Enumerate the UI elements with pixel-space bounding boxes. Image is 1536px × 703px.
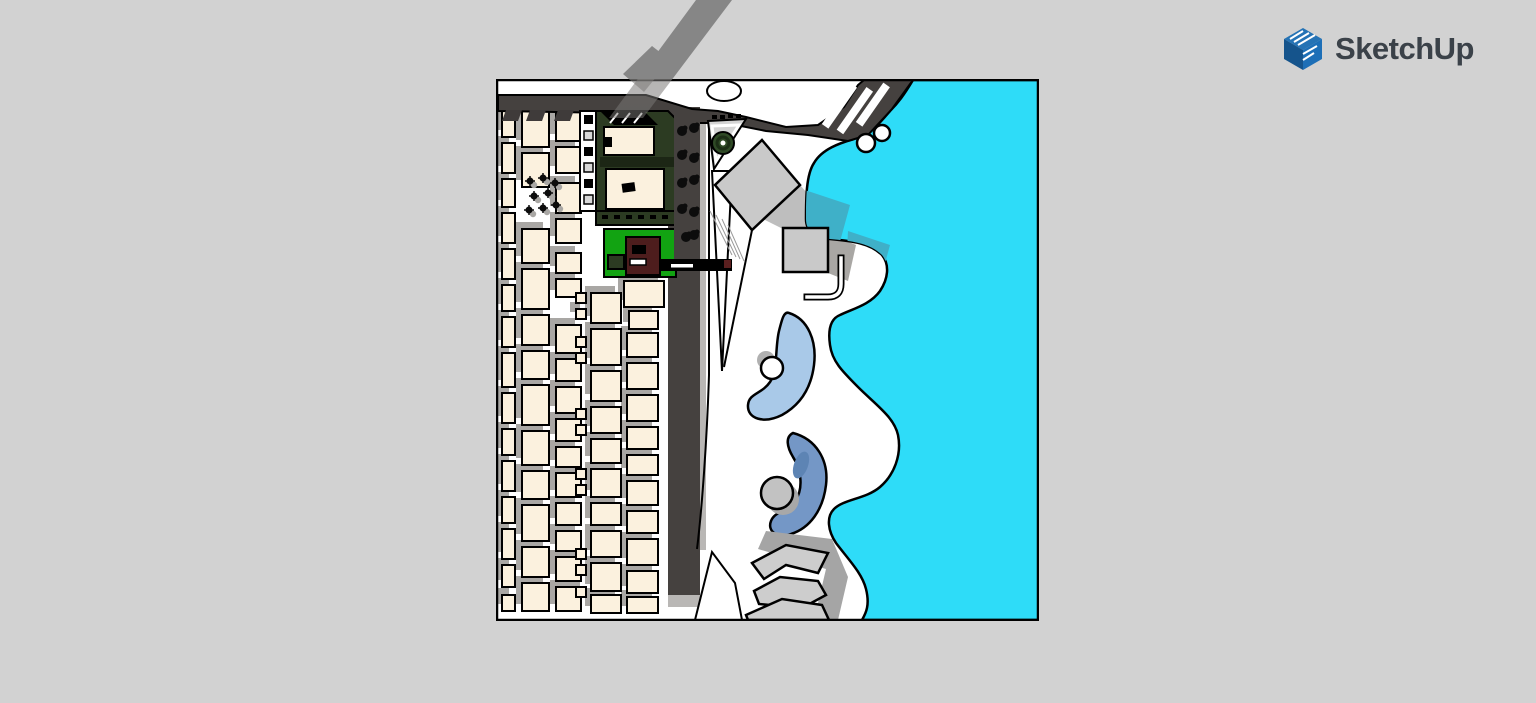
city-building [627, 333, 658, 357]
city-building [522, 471, 549, 499]
sketchup-cube-icon [1281, 27, 1325, 71]
city-building [576, 293, 586, 303]
city-building [576, 409, 586, 419]
city-building [502, 213, 515, 243]
city-building [502, 461, 515, 491]
city-building [522, 583, 549, 611]
city-building [591, 595, 621, 613]
city-building [576, 309, 586, 319]
city-building [502, 429, 515, 455]
city-building [629, 311, 658, 329]
city-building [627, 539, 658, 565]
model-viewport[interactable] [496, 79, 1039, 621]
city-building [556, 253, 581, 273]
city-building [591, 329, 621, 365]
city-building [576, 485, 586, 495]
city-building [627, 363, 658, 389]
site-plan-svg [496, 79, 1039, 621]
city-building [627, 571, 658, 593]
city-building [522, 351, 549, 379]
city-building [591, 503, 621, 525]
sea-water [806, 80, 1039, 620]
city-building [556, 147, 581, 173]
city-building [522, 269, 549, 309]
city-building [627, 511, 658, 533]
city-building [502, 595, 515, 611]
sketchup-canvas-page: { "app": { "logo_text": "SketchUp" }, "c… [0, 0, 1536, 703]
city-building [627, 455, 658, 475]
city-building [522, 229, 549, 263]
city-building [522, 315, 549, 345]
city-building [502, 179, 515, 207]
city-building [591, 469, 621, 497]
city-building [591, 439, 621, 463]
city-building [627, 597, 658, 613]
city-building [576, 425, 586, 435]
city-building [502, 353, 515, 387]
city-building [502, 285, 515, 311]
city-building [502, 143, 515, 173]
city-building [502, 393, 515, 423]
city-building [502, 565, 515, 587]
city-building [591, 371, 621, 401]
city-building [522, 547, 549, 577]
city-building [556, 447, 581, 467]
city-building [522, 385, 549, 425]
city-building [591, 293, 621, 323]
city-building [576, 469, 586, 479]
city-building [576, 587, 586, 597]
pool-island [761, 357, 783, 379]
city-building [624, 281, 664, 307]
city-building [502, 317, 515, 347]
city-building [522, 431, 549, 465]
city-building [502, 497, 515, 523]
city-building [627, 427, 658, 449]
city-building [576, 565, 586, 575]
city-building [591, 407, 621, 433]
city-building [576, 337, 586, 347]
pool-island-gray [761, 477, 793, 509]
city-building [591, 531, 621, 557]
sketchup-logo-text: SketchUp [1335, 31, 1474, 67]
city-building [627, 395, 658, 421]
city-building [522, 505, 549, 541]
square-plaza [783, 228, 828, 272]
city-building [591, 563, 621, 591]
pier-bar [660, 259, 732, 271]
city-building [502, 529, 515, 559]
city-building [576, 549, 586, 559]
city-building [556, 219, 581, 243]
city-building [576, 353, 586, 363]
maroon-building [626, 237, 660, 275]
sketchup-logo: SketchUp [1281, 27, 1474, 71]
city-building [502, 249, 515, 279]
city-building [556, 503, 581, 525]
city-building [627, 481, 658, 505]
